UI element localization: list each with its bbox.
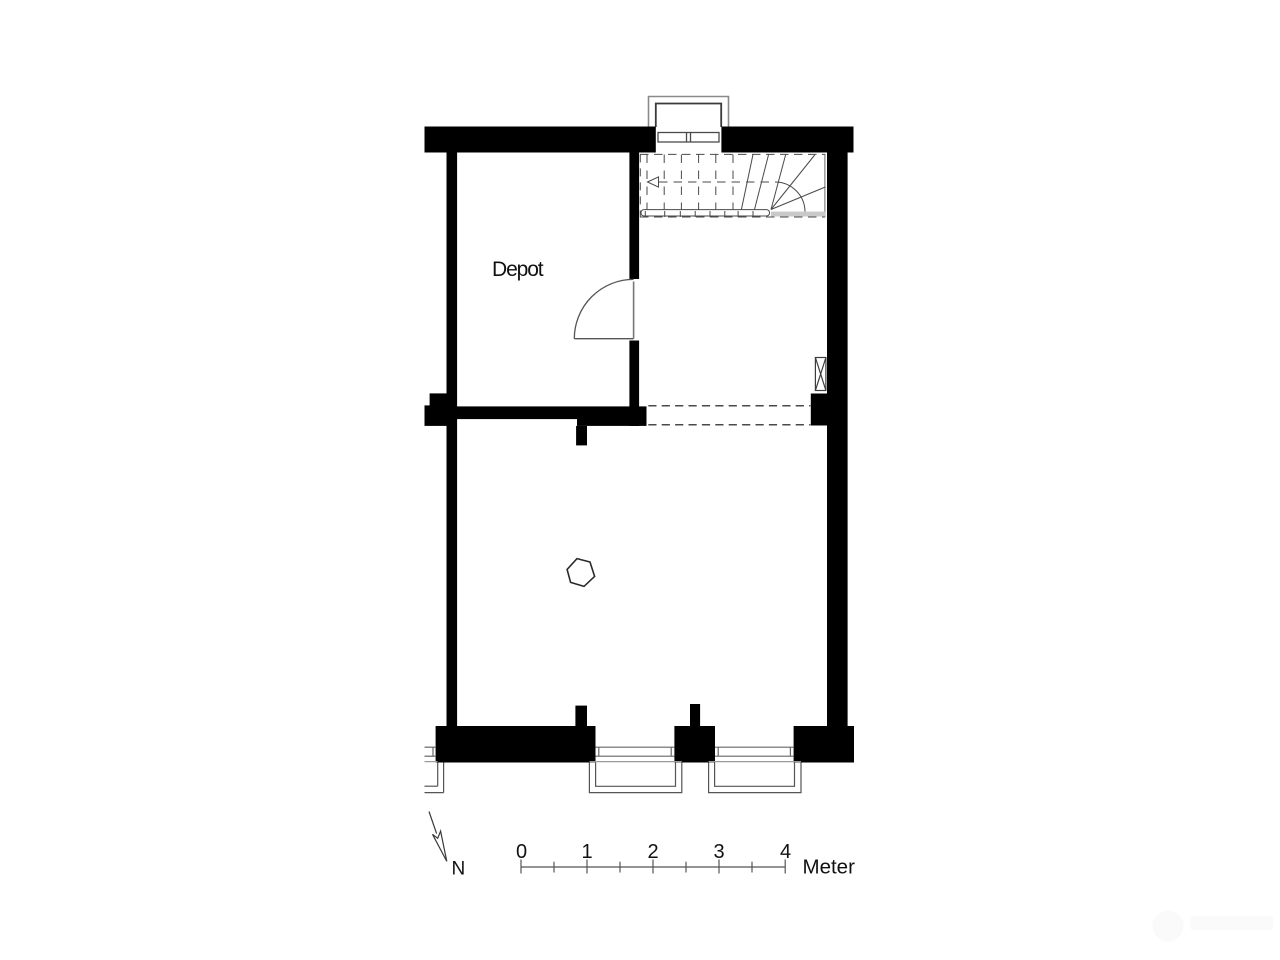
svg-text:4: 4 bbox=[780, 841, 791, 863]
svg-text:1: 1 bbox=[581, 841, 592, 863]
svg-text:0: 0 bbox=[516, 841, 527, 863]
svg-text:2: 2 bbox=[647, 841, 658, 863]
svg-text:Depot: Depot bbox=[492, 258, 544, 281]
svg-text:Meter: Meter bbox=[803, 856, 856, 879]
svg-text:N: N bbox=[452, 859, 466, 880]
svg-text:3: 3 bbox=[713, 841, 724, 863]
